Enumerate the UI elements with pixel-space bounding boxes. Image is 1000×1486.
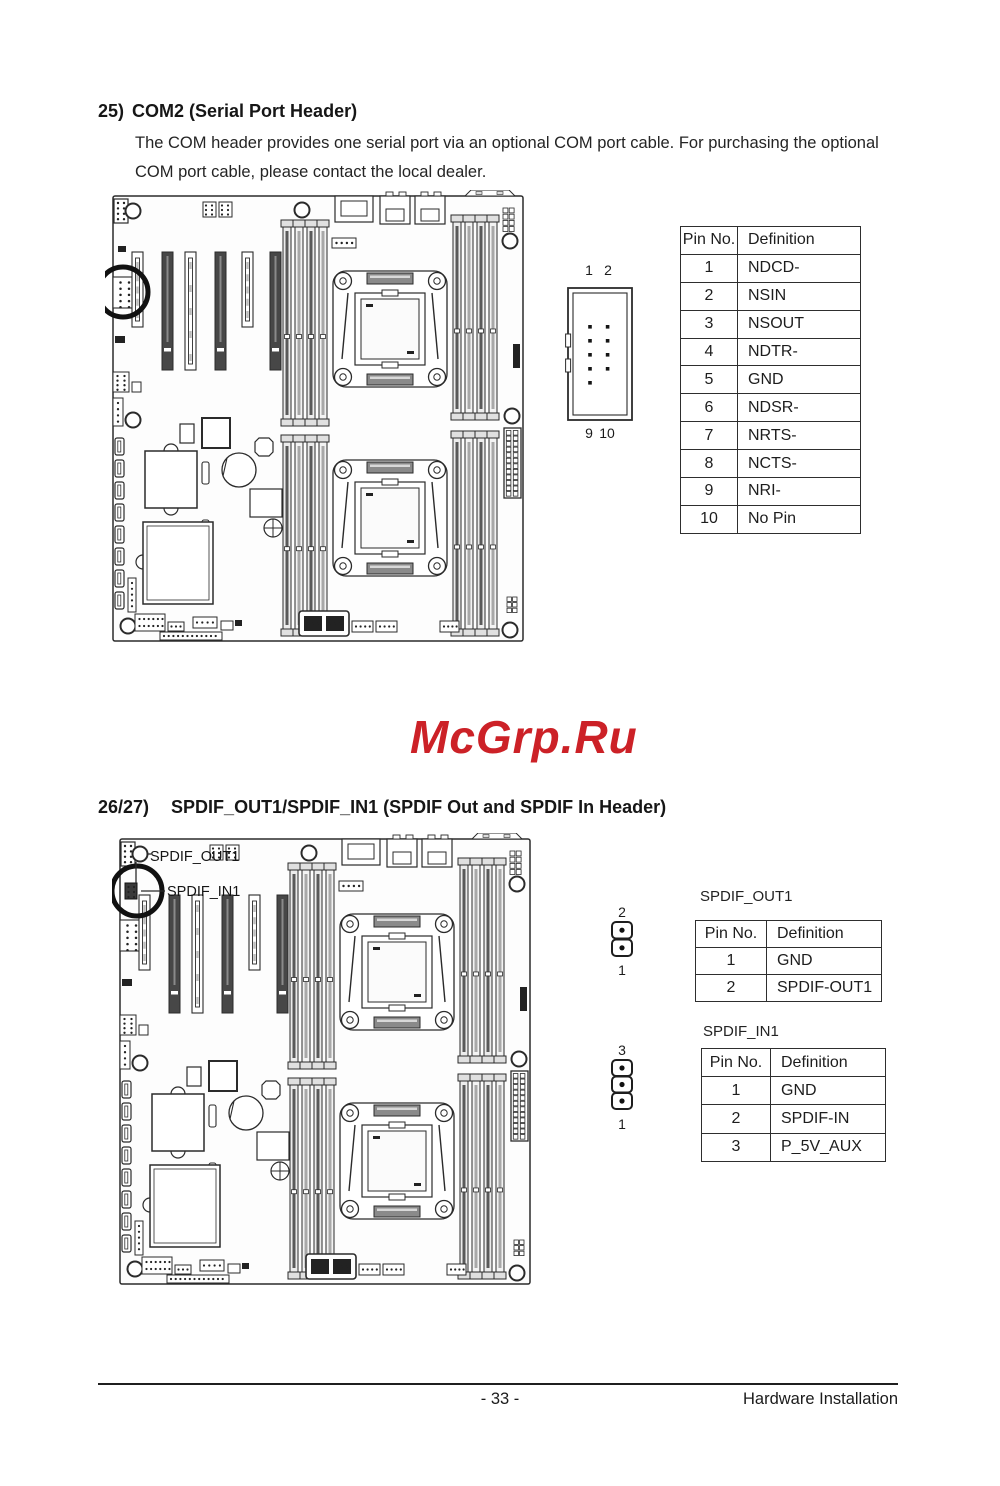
definition-cell: NRTS-	[738, 422, 861, 450]
pin-number-cell: 6	[681, 394, 738, 422]
pin-number-label: 2	[604, 262, 612, 278]
board-callout-spdif-in1: SPDIF_IN1	[167, 884, 240, 900]
section-title: COM2 (Serial Port Header)	[132, 101, 357, 121]
section-number: 25)	[98, 101, 124, 121]
definition-cell: NSIN	[738, 282, 861, 310]
column-header: Pin No.	[696, 921, 767, 948]
table-header-row: Pin No.Definition	[696, 921, 882, 948]
pin-number-cell: 3	[681, 310, 738, 338]
definition-cell: NSOUT	[738, 310, 861, 338]
definition-cell: SPDIF-OUT1	[767, 974, 882, 1001]
table-header-row: Pin No.Definition	[702, 1049, 886, 1077]
section-title: SPDIF_OUT1/SPDIF_IN1 (SPDIF Out and SPDI…	[171, 797, 666, 817]
section-number: 26/27)	[98, 797, 149, 817]
definition-cell: NCTS-	[738, 450, 861, 478]
definition-cell: No Pin	[738, 505, 861, 533]
watermark: McGrp.Ru	[410, 710, 638, 764]
column-header: Pin No.	[702, 1049, 771, 1077]
column-header: Definition	[771, 1049, 886, 1077]
pin-number-cell: 2	[702, 1105, 771, 1133]
definition-cell: GND	[738, 366, 861, 394]
pin-number-label: 3	[618, 1043, 626, 1058]
pin-number-label: 9	[585, 425, 593, 441]
spdif-out1-header-pinout: 2 1	[606, 905, 646, 985]
table-row: 2NSIN	[681, 282, 861, 310]
table-row: 5GND	[681, 366, 861, 394]
pin-number-label: 1	[618, 962, 626, 978]
pin-number-label: 10	[599, 425, 615, 441]
pin-number-label: 1	[618, 1116, 626, 1132]
table-row: 3NSOUT	[681, 310, 861, 338]
table-row: 6NDSR-	[681, 394, 861, 422]
pin-number-cell: 9	[681, 478, 738, 506]
pin-number-cell: 4	[681, 338, 738, 366]
motherboard-diagram-spdif	[112, 833, 537, 1291]
section-heading-com2: 25)COM2 (Serial Port Header)	[98, 101, 357, 122]
table-row: 7NRTS-	[681, 422, 861, 450]
pin-number-cell: 3	[702, 1133, 771, 1161]
footer-rule	[98, 1383, 898, 1385]
table-row: 8NCTS-	[681, 450, 861, 478]
spdif-out1-pin-table: Pin No.Definition1GND2SPDIF-OUT1	[695, 920, 882, 1002]
pin-number-label: 2	[618, 905, 626, 920]
pin-number-label: 1	[585, 262, 593, 278]
definition-cell: NRI-	[738, 478, 861, 506]
table-row: 2SPDIF-IN	[702, 1105, 886, 1133]
body-text-line: COM port cable, please contact the local…	[135, 163, 486, 182]
definition-cell: NDTR-	[738, 338, 861, 366]
definition-cell: GND	[767, 947, 882, 974]
table-row: 3P_5V_AUX	[702, 1133, 886, 1161]
spdif-in1-header-pinout: 3 1	[606, 1043, 646, 1139]
motherboard-diagram-com2	[105, 190, 530, 648]
table-row: 9NRI-	[681, 478, 861, 506]
pin-number-cell: 2	[681, 282, 738, 310]
table-row: 1GND	[696, 947, 882, 974]
definition-cell: SPDIF-IN	[771, 1105, 886, 1133]
section-heading-spdif: 26/27)SPDIF_OUT1/SPDIF_IN1 (SPDIF Out an…	[98, 797, 666, 818]
footer-section-title: Hardware Installation	[598, 1390, 898, 1409]
table-row: 10No Pin	[681, 505, 861, 533]
spdif-in1-pin-table: Pin No.Definition1GND2SPDIF-IN3P_5V_AUX	[701, 1048, 886, 1162]
definition-cell: NDCD-	[738, 254, 861, 282]
com2-header-pinout: 1 2 9 10	[560, 256, 660, 446]
table-header-row: Pin No.Definition	[681, 227, 861, 255]
table-row: 4NDTR-	[681, 338, 861, 366]
com2-pin-table: Pin No.Definition1NDCD-2NSIN3NSOUT4NDTR-…	[680, 226, 861, 534]
spdif-out1-table-title: SPDIF_OUT1	[700, 888, 793, 905]
column-header: Definition	[738, 227, 861, 255]
definition-cell: GND	[771, 1077, 886, 1105]
board-callout-spdif-out1: SPDIF_OUT1	[150, 849, 239, 865]
pin-number-cell: 5	[681, 366, 738, 394]
table-row: 1GND	[702, 1077, 886, 1105]
pin-number-cell: 1	[702, 1077, 771, 1105]
pin-number-cell: 10	[681, 505, 738, 533]
column-header: Definition	[767, 921, 882, 948]
table-row: 1NDCD-	[681, 254, 861, 282]
pin-number-cell: 2	[696, 974, 767, 1001]
pin-number-cell: 8	[681, 450, 738, 478]
table-row: 2SPDIF-OUT1	[696, 974, 882, 1001]
body-text-line: The COM header provides one serial port …	[135, 134, 879, 153]
column-header: Pin No.	[681, 227, 738, 255]
pin-number-cell: 1	[681, 254, 738, 282]
definition-cell: P_5V_AUX	[771, 1133, 886, 1161]
spdif-in1-table-title: SPDIF_IN1	[703, 1023, 779, 1040]
pin-number-cell: 1	[696, 947, 767, 974]
pin-number-cell: 7	[681, 422, 738, 450]
manual-page: 25)COM2 (Serial Port Header) The COM hea…	[0, 0, 1000, 1486]
definition-cell: NDSR-	[738, 394, 861, 422]
